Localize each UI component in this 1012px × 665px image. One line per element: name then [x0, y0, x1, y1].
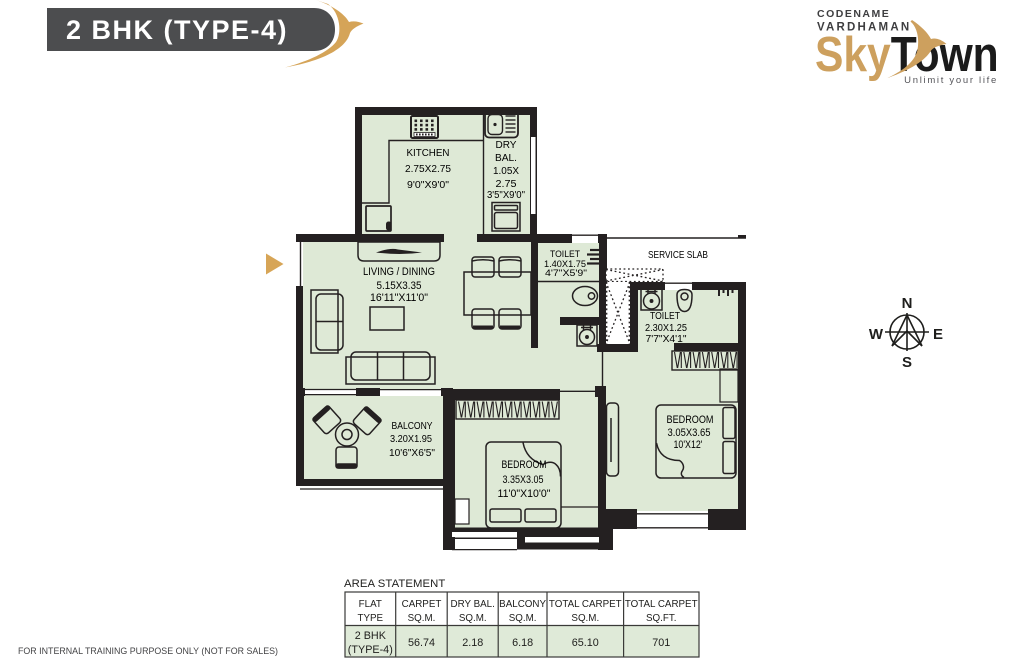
- svg-text:9'0"X9'0": 9'0"X9'0": [407, 179, 449, 191]
- svg-text:W: W: [869, 326, 884, 343]
- svg-text:3.05X3.65: 3.05X3.65: [668, 427, 711, 439]
- svg-text:FLAT: FLAT: [359, 599, 382, 610]
- svg-text:AREA STATEMENT: AREA STATEMENT: [344, 578, 445, 590]
- svg-text:7'7"X4'1": 7'7"X4'1": [646, 334, 687, 345]
- svg-text:BEDROOM: BEDROOM: [502, 459, 547, 471]
- svg-text:3'5"X9'0": 3'5"X9'0": [487, 190, 525, 201]
- svg-text:3.35X3.05: 3.35X3.05: [503, 474, 544, 486]
- svg-text:TYPE: TYPE: [358, 613, 384, 624]
- svg-text:Unlimit your life: Unlimit your life: [904, 75, 998, 86]
- svg-text:2.75: 2.75: [496, 179, 517, 190]
- svg-text:65.10: 65.10: [572, 637, 599, 649]
- svg-text:5.15X3.35: 5.15X3.35: [377, 280, 422, 292]
- svg-text:BALCONY: BALCONY: [392, 420, 433, 432]
- svg-text:16'11"X11'0": 16'11"X11'0": [370, 292, 428, 304]
- svg-text:1.05X: 1.05X: [493, 166, 519, 177]
- svg-text:SQ.M.: SQ.M.: [459, 613, 487, 624]
- svg-text:(TYPE-4): (TYPE-4): [348, 644, 393, 656]
- svg-text:S: S: [902, 354, 912, 371]
- svg-text:FOR INTERNAL TRAINING PURPOSE: FOR INTERNAL TRAINING PURPOSE ONLY (NOT …: [18, 646, 278, 657]
- svg-text:2 BHK (TYPE-4): 2 BHK (TYPE-4): [66, 15, 288, 45]
- svg-text:LIVING / DINING: LIVING / DINING: [363, 266, 435, 278]
- svg-text:2.30X1.25: 2.30X1.25: [645, 323, 687, 334]
- svg-text:56.74: 56.74: [408, 637, 435, 649]
- svg-text:TOILET: TOILET: [650, 311, 680, 322]
- svg-text:KITCHEN: KITCHEN: [407, 147, 450, 159]
- svg-text:SkyTown: SkyTown: [815, 26, 999, 82]
- svg-text:E: E: [933, 326, 943, 343]
- svg-text:CARPET: CARPET: [402, 599, 442, 610]
- svg-text:SQ.FT.: SQ.FT.: [646, 613, 676, 624]
- svg-text:701: 701: [652, 637, 670, 649]
- svg-text:2.75X2.75: 2.75X2.75: [405, 163, 451, 175]
- svg-text:DRY: DRY: [496, 140, 517, 151]
- svg-text:DRY BAL.: DRY BAL.: [451, 599, 495, 610]
- svg-text:BALCONY: BALCONY: [499, 599, 546, 610]
- svg-text:2 BHK: 2 BHK: [355, 630, 387, 642]
- svg-text:CODENAME: CODENAME: [817, 8, 890, 20]
- svg-text:10'X12': 10'X12': [674, 439, 703, 451]
- svg-text:11'0"X10'0": 11'0"X10'0": [498, 488, 551, 500]
- svg-text:BAL.: BAL.: [495, 153, 517, 164]
- svg-text:4'7"X5'9": 4'7"X5'9": [545, 268, 587, 279]
- svg-text:TOTAL CARPET: TOTAL CARPET: [549, 599, 622, 610]
- svg-text:TOTAL CARPET: TOTAL CARPET: [625, 599, 698, 610]
- svg-text:2.18: 2.18: [462, 637, 483, 649]
- svg-text:SERVICE SLAB: SERVICE SLAB: [648, 249, 708, 261]
- svg-text:N: N: [902, 295, 913, 312]
- svg-text:10'6"X6'5": 10'6"X6'5": [389, 447, 435, 459]
- svg-text:SQ.M.: SQ.M.: [509, 613, 537, 624]
- svg-text:SQ.M.: SQ.M.: [408, 613, 436, 624]
- svg-text:3.20X1.95: 3.20X1.95: [390, 433, 432, 445]
- svg-text:SQ.M.: SQ.M.: [571, 613, 599, 624]
- svg-text:BEDROOM: BEDROOM: [667, 414, 714, 426]
- svg-text:6.18: 6.18: [512, 637, 533, 649]
